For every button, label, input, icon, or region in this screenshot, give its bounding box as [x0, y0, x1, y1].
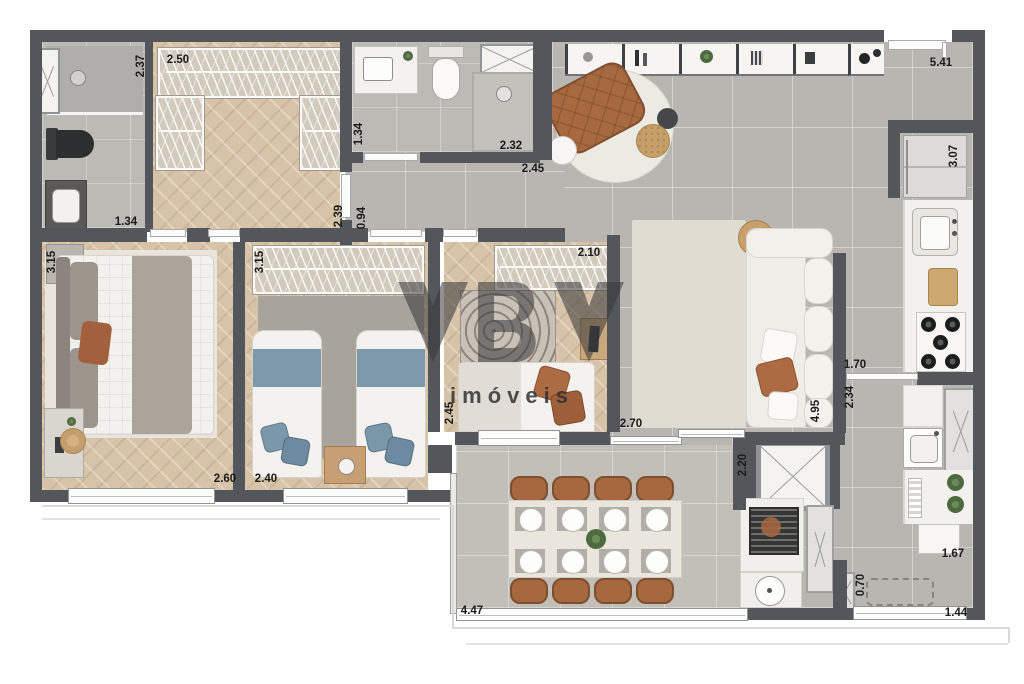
dim-corridor-length: 2.39 [333, 205, 345, 227]
plant-icon [947, 474, 964, 491]
shower-head-icon [70, 70, 86, 86]
vase-icon [583, 52, 593, 62]
shower1-floor [47, 46, 143, 114]
wall [425, 228, 443, 242]
dim-closet-front: 2.50 [167, 54, 189, 66]
dining-table [508, 500, 682, 578]
dim-service-counter: 1.67 [942, 548, 964, 560]
master-pillow-brown [78, 320, 113, 365]
white-pillow [767, 391, 799, 421]
wall [560, 432, 610, 445]
dim-balcony-depth: 2.20 [737, 454, 749, 476]
watermark-subtitle: imóveis [450, 383, 574, 409]
vanity1 [45, 180, 87, 230]
kitchen-pass-lintel [846, 373, 918, 380]
plate [519, 508, 543, 532]
plant-icon [403, 51, 413, 61]
projection-line [42, 505, 452, 507]
wall [240, 228, 368, 242]
rattan-pouf [636, 124, 670, 158]
bar-cabinet [848, 44, 884, 76]
bench-dashed [866, 578, 934, 606]
sofa-back-cushion [804, 306, 833, 352]
plate [603, 550, 627, 574]
projection-line [1008, 627, 1010, 643]
wall [607, 235, 620, 432]
dim-bed3-wardrobe: 2.10 [578, 247, 600, 259]
faucet-icon [952, 231, 957, 236]
dining-chair [636, 578, 674, 604]
wall [30, 30, 884, 42]
wall [888, 133, 900, 198]
faucet-icon [934, 431, 939, 436]
bedroom2-door [370, 229, 422, 237]
bowl-icon [859, 53, 870, 64]
floor-plan: 2.37 2.50 1.34 3.15 2.60 1.34 2.32 2.45 … [0, 0, 1024, 684]
dim-bed2-length: 3.15 [254, 251, 266, 273]
cooktop [916, 312, 966, 372]
drain-icon [767, 588, 772, 593]
fridge-handle [906, 140, 908, 194]
kitchen-sink [912, 208, 958, 256]
tub-basin [910, 435, 938, 463]
decor-icon [805, 52, 815, 64]
vanity2 [354, 46, 418, 94]
wall [917, 372, 973, 385]
dim-master-width: 2.60 [214, 473, 236, 485]
bedroom3-door [443, 229, 477, 237]
charcoal [761, 517, 781, 537]
projection-line [452, 505, 454, 627]
blue-blanket [357, 349, 425, 387]
wall [833, 560, 847, 608]
master-blanket [132, 256, 192, 434]
dim-bath2-side: 1.34 [353, 123, 365, 145]
shower-head-icon [496, 86, 512, 102]
sliding-door-panel [678, 429, 745, 438]
dining-chair [594, 476, 632, 502]
projection-line [452, 627, 1008, 629]
wall [478, 228, 565, 242]
plant-icon [67, 417, 76, 426]
dim-hall-width: 2.45 [522, 163, 544, 175]
bbq-sink-counter [740, 572, 802, 608]
wall [215, 490, 283, 502]
wall [408, 490, 455, 502]
dim-bench-depth: 0.70 [855, 574, 867, 596]
lamp [338, 458, 355, 475]
shaft-icon [480, 44, 538, 74]
bedroom2-nightstand [324, 446, 366, 484]
cutting-board [928, 268, 958, 306]
master-door [208, 229, 240, 237]
books-icon [643, 53, 647, 66]
dim-service-width: 1.44 [945, 607, 967, 619]
books-icon [751, 51, 763, 65]
bbq-cabinet [806, 505, 834, 593]
dim-bed2-width: 2.40 [255, 473, 277, 485]
dim-kitchen-pass: 1.70 [844, 359, 866, 371]
dim-bath2-shower: 2.32 [500, 140, 522, 152]
centerpiece-plant [586, 529, 606, 549]
shower1-glass [47, 112, 143, 115]
bath1-door [150, 229, 186, 237]
dim-balcony-width: 4.47 [461, 605, 483, 617]
plate [561, 508, 585, 532]
dim-living-length: 4.95 [810, 400, 822, 422]
dining-chair [552, 476, 590, 502]
wall [42, 228, 147, 242]
plant-icon [947, 496, 964, 513]
dining-chair [552, 578, 590, 604]
wall [428, 445, 452, 473]
dim-bath1-width: 1.34 [115, 216, 137, 228]
books-icon [635, 50, 639, 66]
wall [533, 42, 552, 160]
towels [908, 478, 922, 518]
tv [588, 326, 600, 353]
sofa-armrest [746, 228, 833, 258]
plate [645, 508, 669, 532]
wall [352, 152, 363, 163]
wall [233, 242, 245, 490]
plate [561, 550, 585, 574]
plate [603, 508, 627, 532]
blue-pillow [280, 436, 311, 467]
plate [645, 550, 669, 574]
dining-chair [510, 578, 548, 604]
plant-icon [700, 50, 713, 63]
wall [973, 42, 985, 620]
sliding-door-panel [610, 436, 682, 445]
wall [745, 608, 853, 620]
bedroom3-window [478, 430, 560, 446]
master-window [68, 488, 215, 504]
dining-chair [636, 476, 674, 502]
wall [187, 228, 210, 242]
wall [30, 490, 68, 502]
wall [745, 432, 845, 445]
laundry-tub [903, 428, 943, 468]
projection-line [42, 518, 440, 520]
door-jamb [942, 42, 947, 58]
jute-rug [60, 428, 86, 454]
bowl-icon [873, 49, 881, 57]
entrance-door [888, 40, 946, 50]
side-table-white [548, 136, 577, 165]
dim-closet-depth: 2.37 [135, 55, 147, 77]
bedroom2-wardrobe [253, 246, 424, 294]
projection-line [466, 643, 1008, 645]
wall [455, 432, 478, 445]
bedroom2-window [283, 488, 408, 504]
service-counter [903, 385, 943, 427]
sink [52, 189, 80, 223]
master-headboard [56, 257, 70, 433]
toilet2-bowl [432, 58, 460, 100]
closet-wardrobe-left [156, 96, 204, 170]
blue-blanket [253, 349, 321, 387]
sofa-back-cushion [804, 258, 833, 304]
wall [340, 42, 352, 172]
wall [888, 120, 973, 133]
dim-kitchen-depth: 2.34 [844, 386, 856, 408]
sofa-back-cushion [804, 354, 833, 400]
bbq-counter [740, 498, 804, 572]
wall [428, 242, 440, 432]
wall [420, 152, 540, 163]
dim-fridge-wall: 3.07 [948, 145, 960, 167]
living-rug [632, 220, 746, 428]
sink [363, 57, 393, 81]
dim-master-length: 3.15 [46, 251, 58, 273]
dim-bed3-width: 2.70 [620, 418, 642, 430]
dining-chair [510, 476, 548, 502]
toilet2-tank [428, 46, 464, 58]
bedroom3-desk [580, 318, 608, 360]
faucet-icon [952, 219, 957, 224]
toilet1-bowl [56, 130, 94, 158]
dim-corridor-width: 0.94 [356, 207, 368, 229]
terrace-window [456, 608, 748, 621]
wall [952, 30, 985, 42]
bath2-door [364, 153, 418, 161]
blue-pillow [383, 435, 415, 467]
wall [967, 608, 985, 620]
wall [30, 42, 42, 502]
dim-living-top: 5.41 [930, 57, 952, 69]
dining-chair [594, 578, 632, 604]
sink-basin [920, 216, 950, 250]
plate [519, 550, 543, 574]
